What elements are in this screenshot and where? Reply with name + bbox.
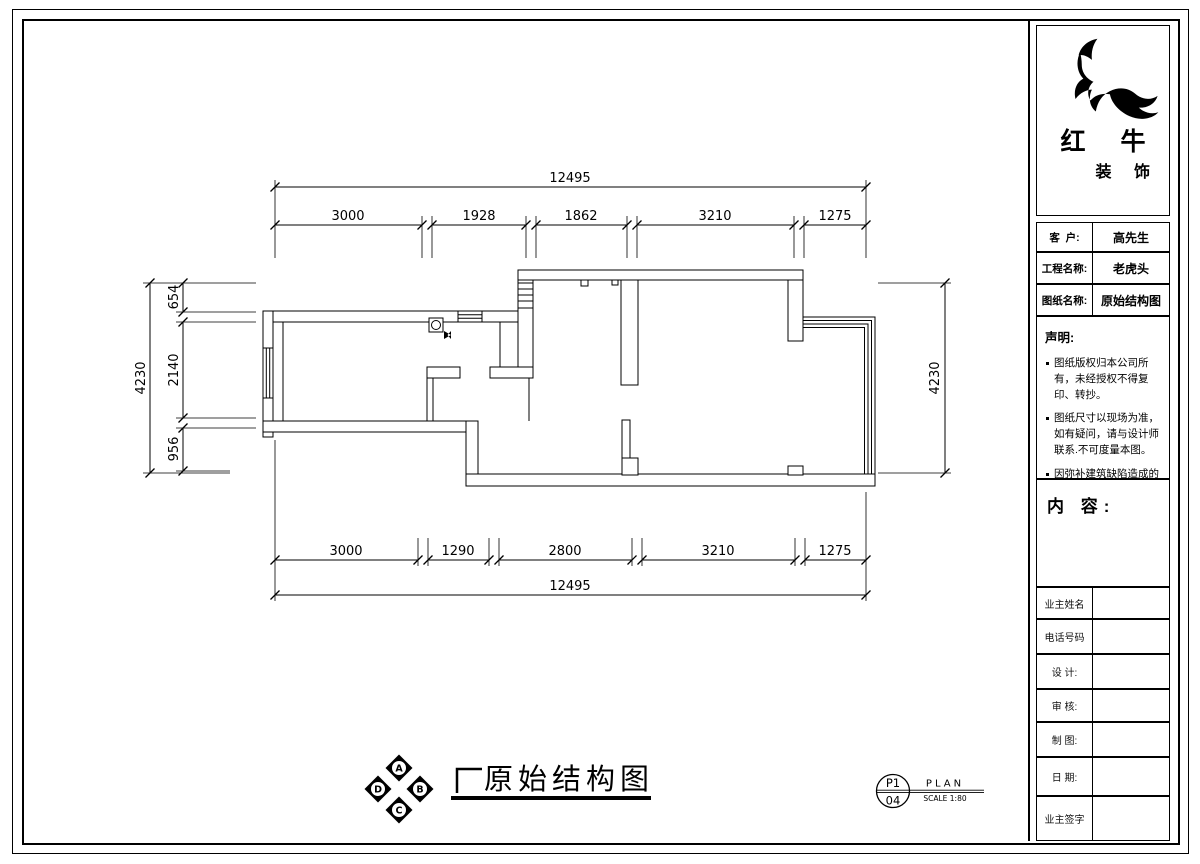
sign-row-label: 设 计: bbox=[1037, 655, 1093, 688]
sign-row-value bbox=[1093, 797, 1169, 840]
statement-item: 图纸尺寸以现场为准，如有疑问，请与设计师联系.不可度量本图。 bbox=[1045, 411, 1165, 458]
title-bracket bbox=[457, 769, 482, 793]
elevation-compass-symbol: A B C D bbox=[365, 755, 434, 824]
sign-row: 业主姓名 bbox=[1036, 587, 1170, 619]
statement-item: 图纸版权归本公司所有，未经授权不得复印、转抄。 bbox=[1045, 356, 1165, 403]
sign-row-value bbox=[1093, 588, 1169, 618]
drawing-sheet: 12495 3000 1928 1862 3210 1275 3000 1290… bbox=[0, 0, 1200, 864]
dim-top-seg: 1928 bbox=[462, 209, 495, 224]
sign-row: 制 图: bbox=[1036, 722, 1170, 757]
sign-row-label: 制 图: bbox=[1037, 723, 1093, 756]
ref-number: 04 bbox=[886, 794, 901, 808]
dim-right-total: 4230 bbox=[928, 361, 943, 394]
sign-row-value bbox=[1093, 723, 1169, 756]
compass-letter-a: A bbox=[395, 764, 403, 775]
sign-row: 业主签字 bbox=[1036, 796, 1170, 841]
dim-left-seg: 654 bbox=[167, 285, 182, 310]
sign-row: 设 计: bbox=[1036, 654, 1170, 689]
sign-row-label: 业主签字 bbox=[1037, 797, 1093, 840]
dim-bottom-seg: 1290 bbox=[441, 544, 474, 559]
dim-top-seg: 1862 bbox=[564, 209, 597, 224]
plan-title: 原始结构图 bbox=[484, 762, 654, 796]
dim-bottom-seg: 2800 bbox=[548, 544, 581, 559]
compass-letter-c: C bbox=[396, 806, 403, 817]
plan-walls bbox=[263, 270, 875, 486]
dimension-texts: 12495 3000 1928 1862 3210 1275 3000 1290… bbox=[134, 171, 943, 594]
sign-row-value bbox=[1093, 758, 1169, 795]
brand-subname: 装 饰 bbox=[1037, 158, 1169, 182]
sign-row-value bbox=[1093, 655, 1169, 688]
dim-bottom-seg: 1275 bbox=[818, 544, 851, 559]
ref-scale: SCALE 1:80 bbox=[923, 794, 966, 803]
balcony-window-lines bbox=[803, 317, 875, 474]
sign-row-label: 业主姓名 bbox=[1037, 588, 1093, 618]
ref-code: P1 bbox=[886, 776, 900, 790]
dim-top-seg: 3000 bbox=[331, 209, 364, 224]
floor-plan-svg: 12495 3000 1928 1862 3210 1275 3000 1290… bbox=[0, 0, 1028, 864]
dim-bottom-seg: 3000 bbox=[329, 544, 362, 559]
field-label: 图纸名称: bbox=[1037, 285, 1093, 315]
window-symbols bbox=[263, 283, 533, 398]
dim-top-seg: 1275 bbox=[818, 209, 851, 224]
field-label: 客 户: bbox=[1037, 223, 1093, 251]
statement-title: 声明: bbox=[1045, 327, 1169, 346]
sign-row: 日 期: bbox=[1036, 757, 1170, 796]
sign-row-label: 审 核: bbox=[1037, 690, 1093, 721]
dim-top-seg: 3210 bbox=[698, 209, 731, 224]
field-row-project: 工程名称: 老虎头 bbox=[1036, 252, 1170, 284]
field-row-sheetname: 图纸名称: 原始结构图 bbox=[1036, 284, 1170, 316]
sign-row: 审 核: bbox=[1036, 689, 1170, 722]
logo-box: 红 牛 装 饰 bbox=[1036, 25, 1170, 216]
sign-row-value bbox=[1093, 620, 1169, 653]
sign-row: 电话号码 bbox=[1036, 619, 1170, 654]
content-box: 内 容: bbox=[1036, 479, 1170, 587]
sign-row-label: 电话号码 bbox=[1037, 620, 1093, 653]
content-label: 内 容: bbox=[1047, 492, 1169, 517]
dim-top-total: 12495 bbox=[549, 171, 590, 186]
field-value: 老虎头 bbox=[1093, 253, 1169, 283]
flue-symbol bbox=[429, 318, 443, 332]
dim-left-total: 4230 bbox=[134, 361, 149, 394]
dim-bottom-seg: 3210 bbox=[701, 544, 734, 559]
sign-row-label: 日 期: bbox=[1037, 758, 1093, 795]
title-block: 红 牛 装 饰 客 户: 高先生 工程名称: 老虎头 图纸名称: 原始结构图 声… bbox=[1028, 19, 1178, 841]
dim-left-seg: 956 bbox=[167, 437, 182, 462]
sign-row-value bbox=[1093, 690, 1169, 721]
bull-swoosh-logo-icon bbox=[1045, 38, 1167, 124]
door-frame-marks bbox=[581, 280, 618, 286]
compass-letter-b: B bbox=[416, 785, 423, 796]
dim-left-seg: 2140 bbox=[167, 353, 182, 386]
field-label: 工程名称: bbox=[1037, 253, 1093, 283]
ref-view: PLAN bbox=[926, 779, 964, 790]
brand-name: 红 牛 bbox=[1037, 122, 1169, 158]
dim-bottom-total: 12495 bbox=[549, 579, 590, 594]
field-row-client: 客 户: 高先生 bbox=[1036, 222, 1170, 252]
compass-letter-d: D bbox=[374, 785, 382, 796]
statement-box: 声明: 图纸版权归本公司所有，未经授权不得复印、转抄。 图纸尺寸以现场为准，如有… bbox=[1036, 316, 1170, 479]
field-value: 高先生 bbox=[1093, 223, 1169, 251]
gas-valve-symbol bbox=[444, 331, 451, 339]
field-value: 原始结构图 bbox=[1093, 285, 1169, 315]
